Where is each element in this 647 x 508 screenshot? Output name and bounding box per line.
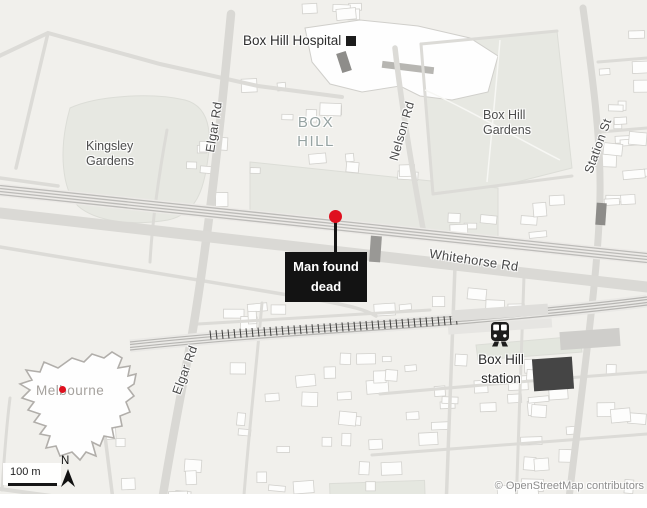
- hospital-label: Box Hill Hospital: [243, 33, 356, 48]
- incident-callout: Man found dead: [285, 252, 367, 302]
- marker-stem: [334, 221, 337, 253]
- callout-line1: Man found: [285, 257, 367, 277]
- scale-bar: 100 m: [3, 463, 61, 485]
- north-label: N: [61, 455, 69, 467]
- hospital-marker-icon: [346, 36, 356, 46]
- incident-marker: [329, 210, 342, 223]
- hospital-label-text: Box Hill Hospital: [243, 33, 341, 48]
- scale-bar-line: [8, 483, 57, 486]
- box-hill-gardens-label: Box Hill Gardens: [483, 108, 531, 137]
- kingsley-gardens-label: Kingsley Gardens: [86, 139, 134, 168]
- train-station-icon: [489, 322, 511, 353]
- inset-city-label: Melbourne: [36, 383, 104, 398]
- suburb-label-line1: BOX: [286, 113, 346, 132]
- callout-line2: dead: [285, 277, 367, 297]
- scale-bar-label: 100 m: [10, 466, 41, 478]
- suburb-label-line2: HILL: [286, 132, 346, 151]
- north-arrow-icon: [58, 467, 78, 489]
- bottom-margin: [0, 494, 647, 508]
- news-map: Box Hill Hospital BOX HILL Kingsley Gard…: [0, 0, 647, 508]
- inset-location-dot: [59, 386, 66, 393]
- suburb-label: BOX HILL: [286, 113, 346, 151]
- station-label: Box Hill station: [452, 350, 550, 388]
- osm-attribution-link[interactable]: © OpenStreetMap contributors: [495, 480, 644, 492]
